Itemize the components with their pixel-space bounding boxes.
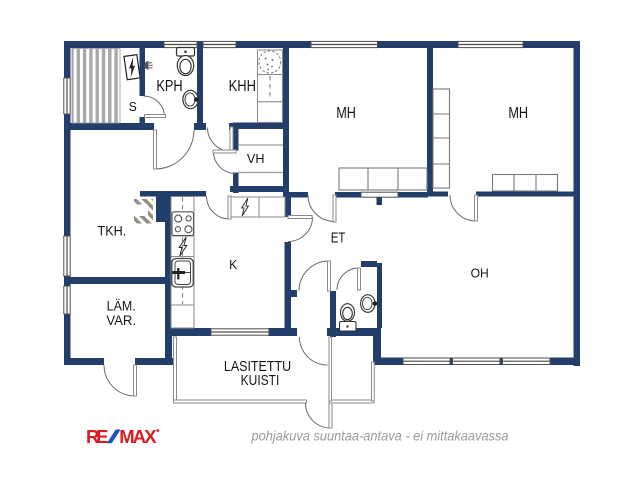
svg-text:TKH.: TKH. bbox=[98, 223, 127, 239]
svg-text:RE: RE bbox=[86, 426, 109, 447]
svg-text:MAX: MAX bbox=[119, 426, 157, 447]
svg-text:VAR.: VAR. bbox=[106, 313, 136, 328]
svg-text:ET: ET bbox=[331, 229, 346, 246]
svg-text:K: K bbox=[229, 258, 238, 272]
svg-text:LÄM.: LÄM. bbox=[107, 298, 136, 314]
svg-text:KPH: KPH bbox=[156, 78, 182, 96]
svg-text:OH: OH bbox=[471, 266, 489, 280]
svg-text:KUISTI: KUISTI bbox=[241, 372, 280, 388]
svg-text:S: S bbox=[129, 100, 137, 114]
svg-text:pohjakuva suuntaa-antava - ei: pohjakuva suuntaa-antava - ei mittakaava… bbox=[251, 428, 509, 444]
svg-text:KHH: KHH bbox=[229, 78, 256, 95]
svg-text:VH: VH bbox=[247, 151, 265, 166]
svg-text:MH: MH bbox=[508, 105, 528, 122]
svg-text:MH: MH bbox=[336, 105, 356, 122]
